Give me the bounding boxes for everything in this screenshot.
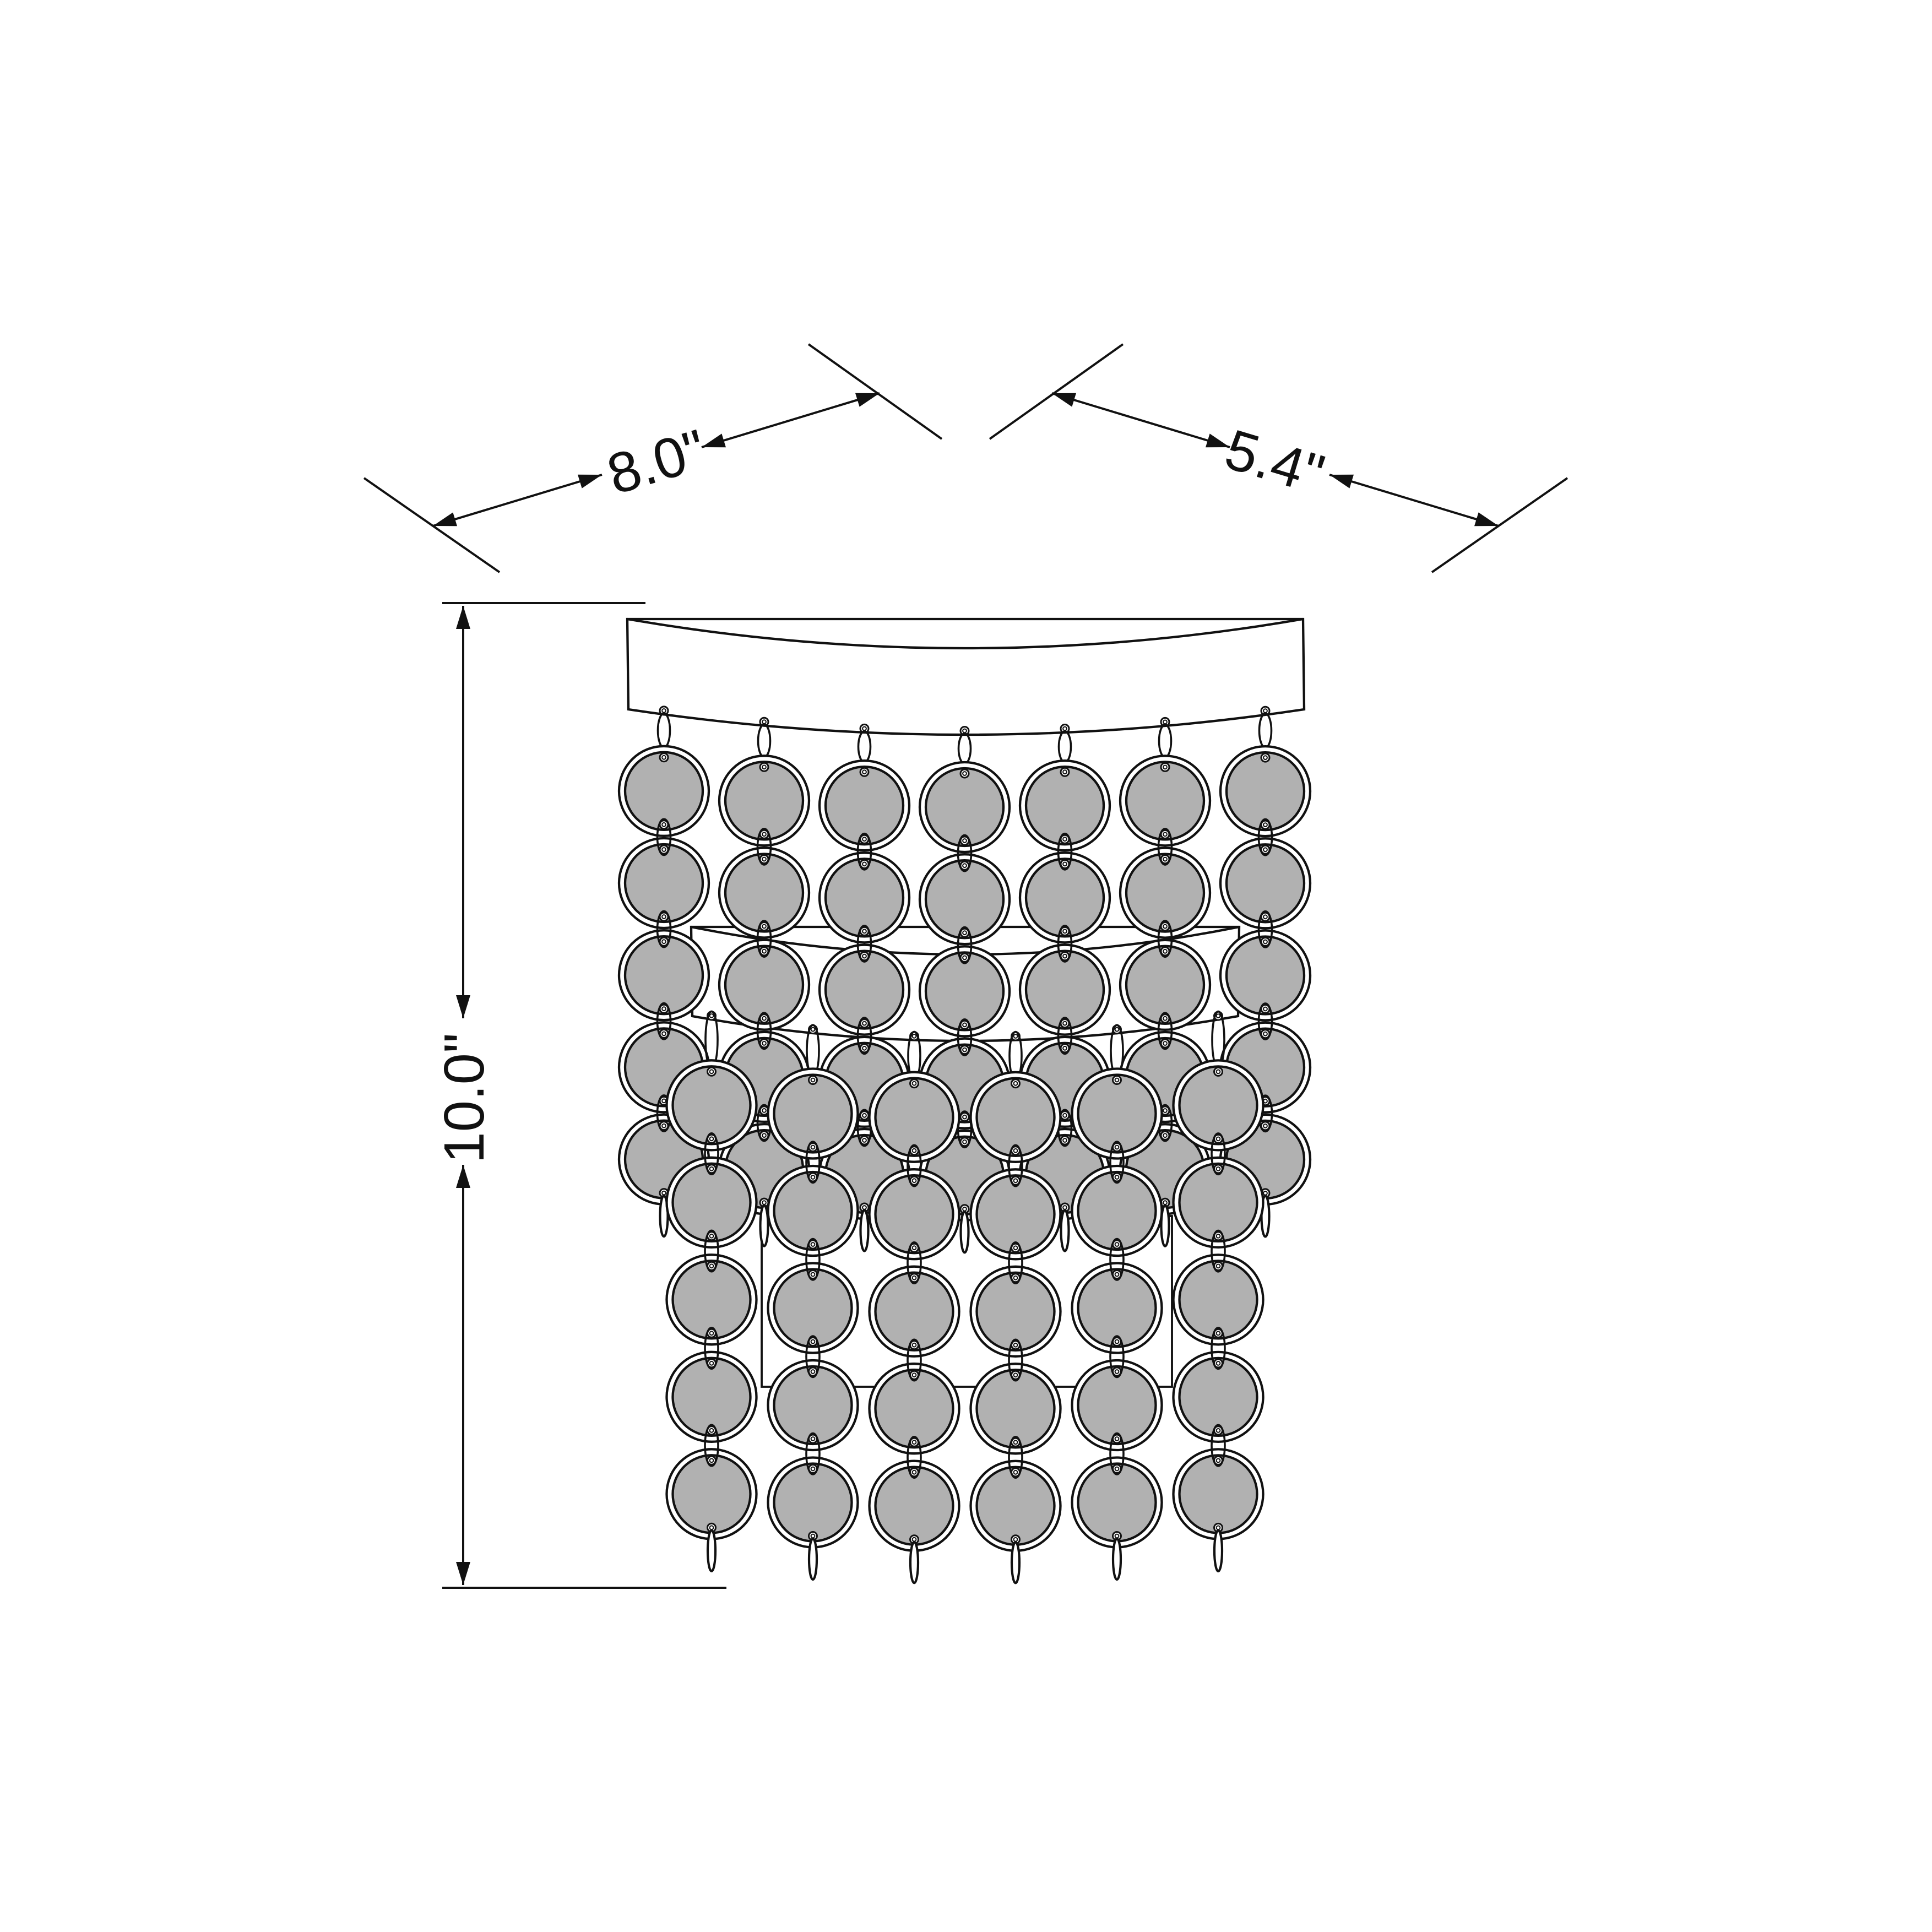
svg-text:8.0": 8.0" — [600, 417, 713, 506]
svg-text:5.4": 5.4" — [1218, 417, 1331, 506]
svg-text:10.0": 10.0" — [432, 1033, 496, 1163]
